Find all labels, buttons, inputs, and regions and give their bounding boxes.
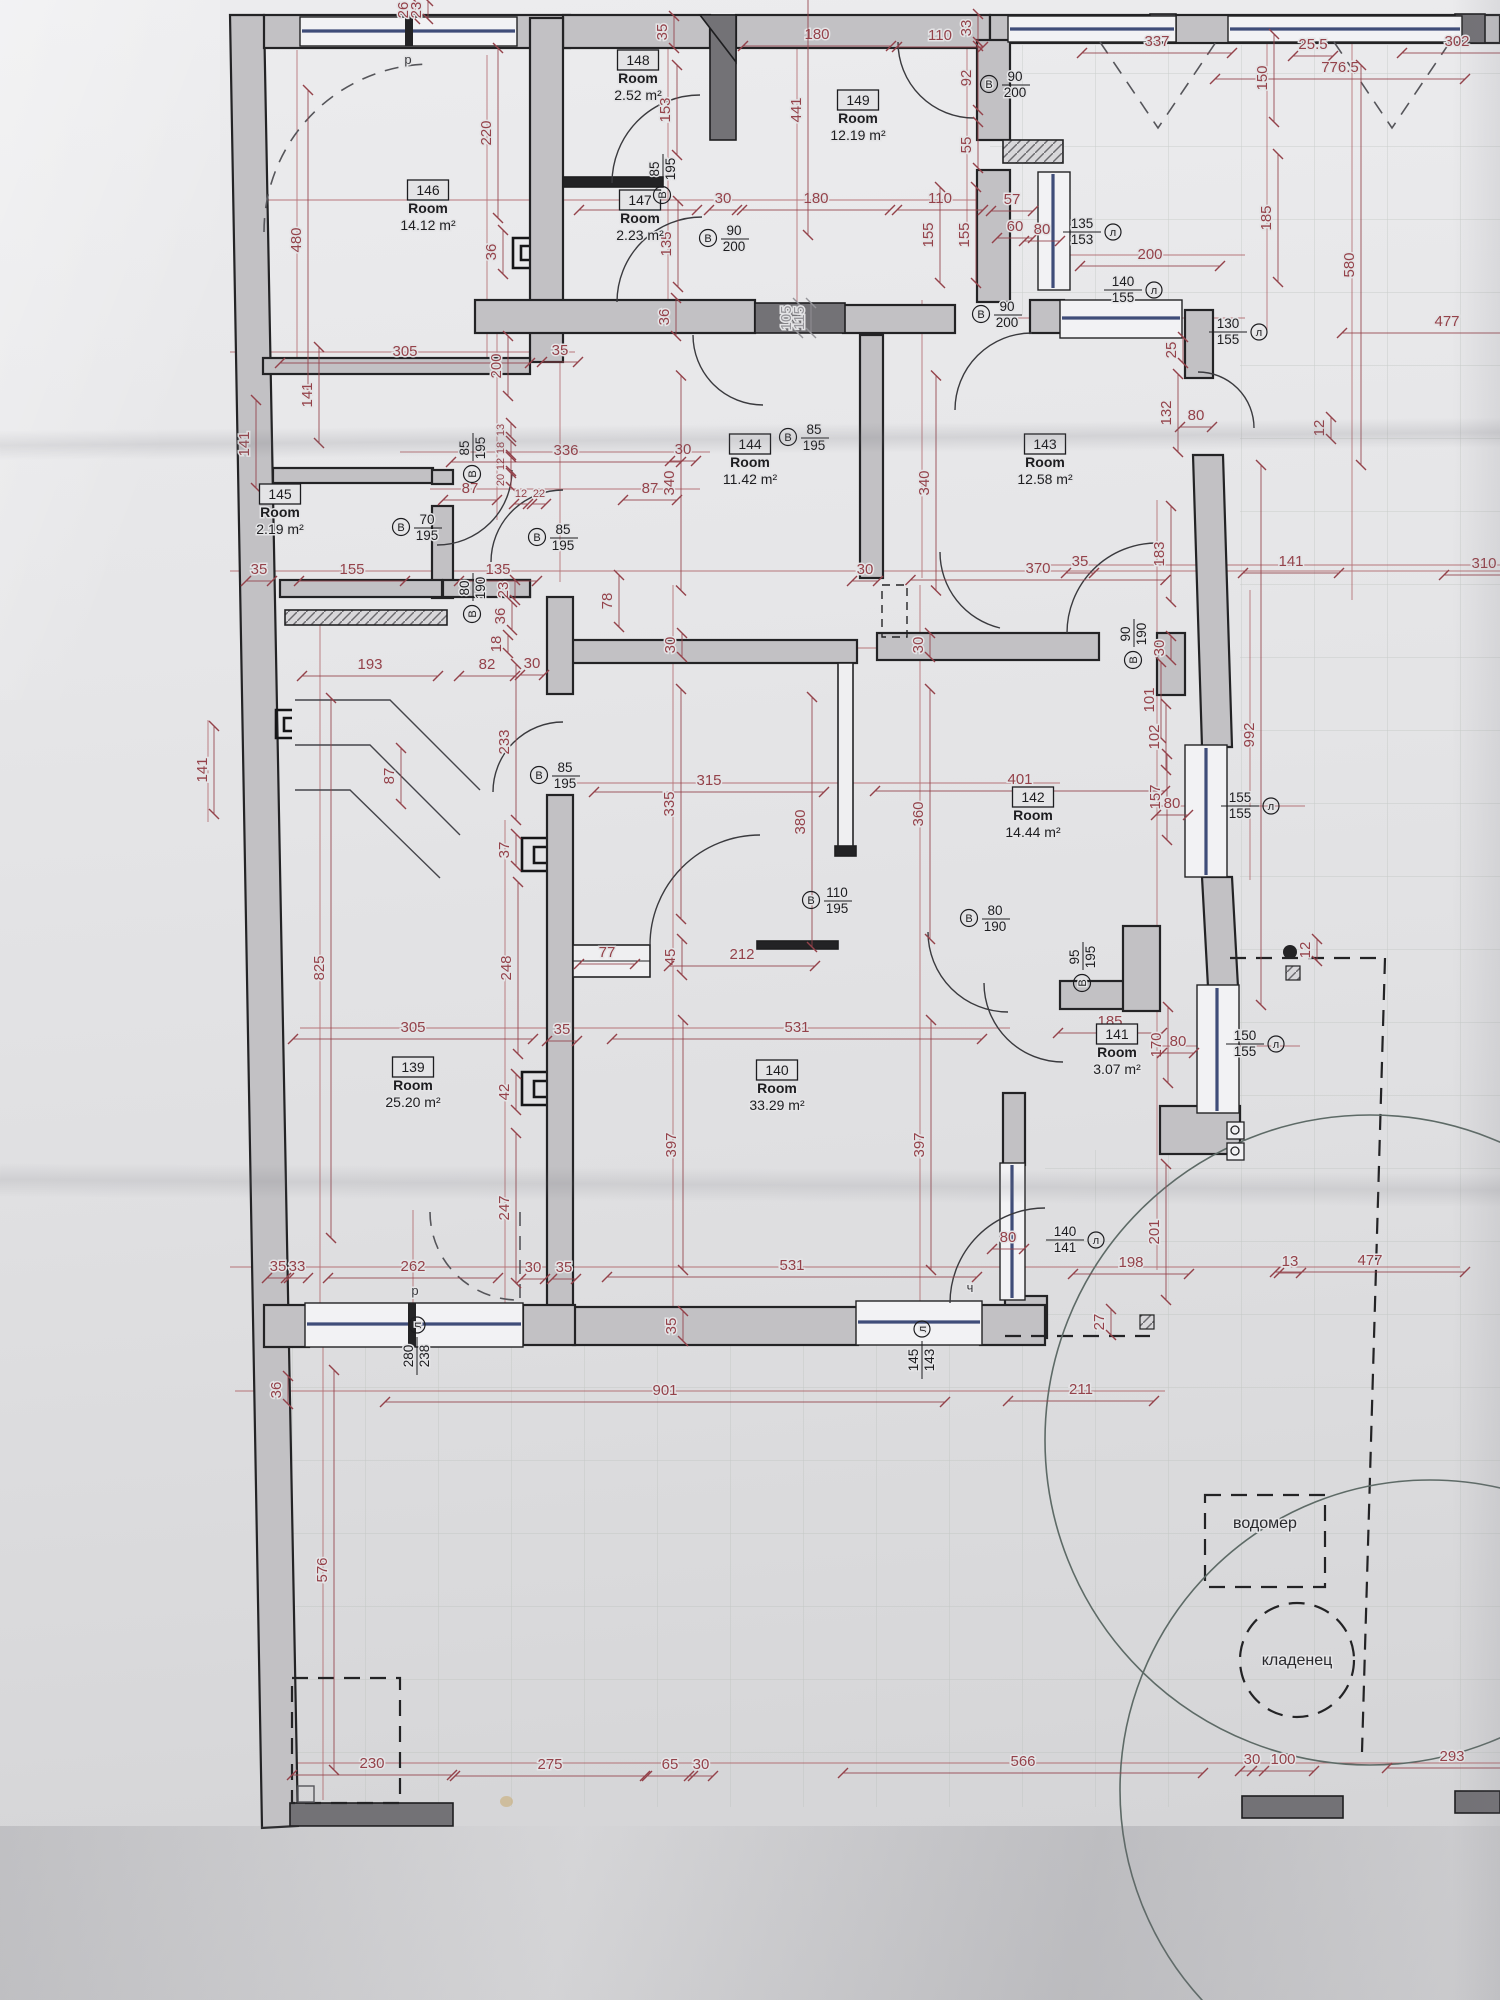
svg-text:30: 30 (693, 1756, 710, 1773)
svg-text:195: 195 (552, 538, 575, 553)
svg-text:л: л (1110, 227, 1116, 239)
svg-text:155: 155 (956, 222, 973, 247)
dim-label: 315 (589, 772, 829, 797)
dim-label: 45 (662, 934, 687, 980)
svg-text:200: 200 (1137, 246, 1162, 263)
svg-text:141: 141 (299, 382, 316, 407)
svg-text:380: 380 (792, 809, 809, 834)
svg-text:23: 23 (495, 582, 512, 599)
door-size-label: В85195 (780, 422, 830, 453)
svg-text:155: 155 (339, 561, 364, 578)
svg-text:35: 35 (251, 561, 268, 578)
svg-text:2.52 m²: 2.52 m² (614, 87, 662, 103)
dim-label: 35 (1061, 553, 1099, 578)
svg-text:14.12 m²: 14.12 m² (400, 217, 456, 233)
svg-text:В: В (535, 770, 542, 782)
svg-text:35: 35 (1072, 553, 1089, 570)
dim-label: 20 (495, 468, 516, 492)
svg-text:200: 200 (1004, 85, 1027, 100)
dim-label: 30 (704, 190, 742, 215)
dim-label: 340 (661, 371, 686, 596)
svg-text:397: 397 (911, 1132, 928, 1157)
svg-text:145: 145 (906, 1349, 921, 1372)
svg-text:37: 37 (496, 842, 513, 859)
svg-text:12: 12 (495, 458, 507, 470)
svg-text:42: 42 (496, 1084, 513, 1101)
svg-text:195: 195 (826, 901, 849, 916)
room-label-144: 144Room11.42 m² (723, 434, 778, 487)
svg-text:230: 230 (359, 1755, 384, 1772)
svg-text:Room: Room (838, 110, 878, 126)
svg-text:л: л (1093, 1235, 1099, 1247)
dim-label: 193 (297, 656, 443, 681)
svg-text:ч: ч (967, 1280, 974, 1295)
svg-text:195: 195 (416, 528, 439, 543)
dim-label: 340 (916, 371, 941, 596)
svg-text:302: 302 (1444, 33, 1469, 50)
svg-text:25.20 m²: 25.20 m² (385, 1094, 441, 1110)
svg-text:77: 77 (599, 944, 616, 961)
svg-text:200: 200 (723, 239, 746, 254)
svg-text:27: 27 (1091, 1314, 1108, 1331)
swing-letter: р (411, 1283, 418, 1298)
svg-text:80: 80 (1000, 1229, 1017, 1246)
svg-text:л: л (1256, 327, 1262, 339)
paper-stain (500, 1796, 513, 1807)
swing-letters: ррч (404, 52, 973, 1298)
svg-text:200: 200 (996, 315, 1019, 330)
svg-text:85: 85 (457, 440, 472, 455)
svg-text:80: 80 (457, 580, 472, 595)
svg-text:143: 143 (1033, 436, 1057, 452)
svg-text:132: 132 (1158, 400, 1175, 425)
room-label-143: 143Room12.58 m² (1017, 434, 1073, 487)
door-size-label: В90190 (1118, 619, 1149, 669)
svg-text:33: 33 (958, 20, 975, 37)
dim-label: 36 (492, 597, 517, 635)
swing-letter: р (404, 52, 411, 67)
svg-text:566: 566 (1010, 1753, 1035, 1770)
svg-text:Room: Room (730, 454, 770, 470)
door-size-label: В85195 (457, 433, 488, 483)
svg-text:183: 183 (1151, 541, 1168, 566)
svg-text:101: 101 (1141, 687, 1158, 712)
svg-text:211: 211 (1069, 1381, 1093, 1398)
dim-label: 18 (488, 630, 513, 658)
svg-text:140: 140 (1054, 1224, 1077, 1239)
svg-text:195: 195 (1083, 946, 1098, 969)
svg-text:В: В (965, 913, 972, 925)
dim-label: 360 (910, 684, 935, 944)
svg-text:80: 80 (1170, 1033, 1187, 1050)
svg-text:144: 144 (738, 436, 762, 452)
svg-text:293: 293 (1439, 1748, 1464, 1765)
dim-label: 531 (607, 1019, 987, 1044)
floorplan-drawing: 2623220480305200353635153165301801353618… (0, 0, 1500, 2000)
svg-text:335: 335 (661, 791, 678, 816)
svg-text:141: 141 (194, 757, 211, 782)
svg-text:155: 155 (920, 222, 937, 247)
door-size-label: В85195 (529, 522, 579, 553)
svg-text:35: 35 (554, 1021, 571, 1038)
svg-text:401: 401 (1007, 771, 1032, 788)
svg-text:248: 248 (498, 955, 515, 980)
svg-text:30: 30 (1151, 640, 1168, 657)
svg-text:30: 30 (1244, 1751, 1261, 1768)
svg-text:150: 150 (1234, 1028, 1257, 1043)
svg-text:36: 36 (656, 309, 673, 326)
dim-label: 12 (495, 452, 516, 476)
svg-text:Room: Room (620, 210, 660, 226)
svg-text:340: 340 (916, 470, 933, 495)
svg-text:531: 531 (779, 1257, 804, 1274)
dim-label: 825 (311, 693, 336, 1243)
partition-lines (573, 663, 853, 977)
svg-text:80: 80 (1034, 221, 1051, 238)
dim-label: 397 (911, 1015, 936, 1275)
room-label-141: 141Room3.07 m² (1093, 1024, 1141, 1077)
svg-text:85: 85 (647, 161, 662, 176)
dim-label: 37 (496, 829, 521, 871)
svg-text:901: 901 (652, 1382, 677, 1399)
svg-text:80: 80 (987, 903, 1002, 918)
svg-text:12: 12 (1311, 420, 1328, 437)
svg-text:825: 825 (311, 955, 328, 980)
dim-label: 248 (498, 877, 523, 1059)
svg-text:36: 36 (492, 608, 509, 625)
svg-text:В: В (467, 610, 479, 617)
svg-text:110: 110 (928, 27, 952, 44)
svg-text:36: 36 (268, 1382, 285, 1399)
svg-text:водомер: водомер (1233, 1515, 1297, 1532)
dim-label: 397 (663, 1015, 688, 1275)
svg-text:146: 146 (416, 182, 440, 198)
svg-text:180: 180 (803, 190, 828, 207)
svg-text:336: 336 (553, 442, 578, 459)
svg-text:305: 305 (392, 343, 417, 360)
svg-text:157: 157 (1147, 784, 1164, 809)
room-label-146: 146Room14.12 m² (400, 180, 456, 233)
svg-text:12.19 m²: 12.19 m² (830, 127, 886, 143)
svg-text:13: 13 (1282, 1253, 1299, 1270)
svg-text:315: 315 (696, 772, 721, 789)
dim-label: 78 (599, 570, 624, 632)
svg-text:110: 110 (826, 885, 848, 900)
swing-letter: ч (967, 1280, 974, 1295)
svg-text:В: В (784, 432, 791, 444)
svg-text:Room: Room (408, 200, 448, 216)
svg-text:90: 90 (999, 299, 1014, 314)
svg-text:л: л (917, 1326, 929, 1332)
svg-text:25: 25 (1163, 342, 1180, 359)
svg-text:580: 580 (1341, 252, 1358, 277)
room-label-145: 145Room2.19 m² (256, 484, 304, 537)
svg-text:90: 90 (726, 223, 741, 238)
svg-text:90: 90 (1118, 626, 1133, 641)
svg-text:В: В (977, 309, 984, 321)
dim-label: 80 (1175, 407, 1217, 432)
svg-text:В: В (1128, 656, 1140, 663)
svg-text:85: 85 (555, 522, 570, 537)
svg-text:185: 185 (1258, 205, 1275, 230)
svg-text:193: 193 (357, 656, 382, 673)
svg-text:92: 92 (958, 70, 975, 87)
svg-text:190: 190 (984, 919, 1007, 934)
svg-text:30: 30 (910, 637, 927, 654)
dim-label: 335 (661, 684, 686, 924)
dim-label: 13 (495, 418, 516, 442)
dim-label: 141 (194, 721, 219, 819)
dim-label: 233 (496, 659, 521, 825)
room-label-139: 139Room25.20 m² (385, 1057, 441, 1110)
svg-text:л: л (1151, 285, 1157, 297)
dim-label: 153 (657, 60, 682, 160)
svg-text:25.5: 25.5 (1298, 36, 1327, 53)
svg-text:139: 139 (401, 1059, 425, 1075)
svg-text:531: 531 (784, 1019, 809, 1036)
room-label-142: 142Room14.44 m² (1005, 787, 1061, 840)
svg-text:212: 212 (729, 946, 754, 963)
svg-text:30: 30 (524, 655, 541, 672)
svg-text:30: 30 (857, 561, 874, 578)
svg-text:115: 115 (791, 306, 808, 330)
svg-text:149: 149 (846, 92, 870, 108)
svg-text:л: л (1268, 801, 1274, 813)
svg-text:55: 55 (958, 137, 975, 154)
svg-text:12.58 m²: 12.58 m² (1017, 471, 1073, 487)
svg-text:280: 280 (401, 1345, 416, 1368)
svg-text:247: 247 (496, 1195, 513, 1220)
svg-text:18: 18 (488, 636, 505, 653)
svg-text:200: 200 (488, 353, 505, 378)
svg-text:78: 78 (599, 593, 616, 610)
svg-text:141: 141 (1054, 1240, 1077, 1255)
svg-text:30: 30 (675, 441, 692, 458)
door-size-label: В90200 (700, 223, 750, 254)
svg-text:Room: Room (757, 1080, 797, 1096)
svg-text:р: р (411, 1283, 418, 1298)
svg-text:135: 135 (485, 561, 510, 578)
svg-text:36: 36 (483, 244, 500, 261)
svg-text:370: 370 (1025, 560, 1050, 577)
svg-text:30: 30 (525, 1259, 542, 1276)
svg-text:Room: Room (1025, 454, 1065, 470)
dim-label: 220 (478, 43, 503, 223)
dim-label: 132 (1158, 369, 1183, 457)
svg-text:12: 12 (1297, 942, 1314, 959)
svg-text:20: 20 (495, 474, 507, 486)
svg-text:155: 155 (1112, 290, 1135, 305)
dim-label: 380 (792, 692, 817, 952)
svg-text:135: 135 (1071, 216, 1094, 231)
svg-text:В: В (657, 191, 669, 198)
svg-text:18: 18 (495, 442, 507, 454)
svg-text:2.19 m²: 2.19 m² (256, 521, 304, 537)
svg-text:140: 140 (1112, 274, 1135, 289)
svg-text:776.5: 776.5 (1321, 59, 1359, 76)
svg-text:441: 441 (788, 97, 805, 122)
svg-text:23: 23 (408, 2, 425, 19)
svg-text:480: 480 (288, 227, 305, 252)
svg-text:100: 100 (1270, 1751, 1295, 1768)
dim-label: 480 (288, 85, 313, 395)
svg-text:В: В (397, 522, 404, 534)
svg-text:кладенец: кладенец (1262, 1652, 1333, 1669)
svg-text:р: р (404, 52, 411, 67)
svg-text:141: 141 (1278, 553, 1303, 570)
svg-text:145: 145 (268, 486, 292, 502)
svg-text:95: 95 (1067, 949, 1082, 964)
svg-text:576: 576 (314, 1557, 331, 1582)
svg-text:3.07 m²: 3.07 m² (1093, 1061, 1141, 1077)
svg-text:141: 141 (1105, 1026, 1129, 1042)
svg-text:360: 360 (910, 801, 927, 826)
svg-text:195: 195 (473, 437, 488, 460)
svg-text:35: 35 (556, 1259, 573, 1276)
svg-text:305: 305 (400, 1019, 425, 1036)
svg-text:35: 35 (552, 342, 569, 359)
svg-text:В: В (1077, 979, 1089, 986)
outer-left-wall (230, 15, 298, 1828)
svg-text:190: 190 (1134, 623, 1149, 646)
svg-text:90: 90 (1007, 69, 1022, 84)
room-label-140: 140Room33.29 m² (749, 1060, 805, 1113)
wall-hatched-layer (285, 140, 1063, 625)
svg-text:87: 87 (381, 768, 398, 785)
svg-text:220: 220 (478, 120, 495, 145)
dim-label: 87 (381, 743, 406, 809)
svg-text:л: л (1273, 1039, 1279, 1051)
svg-text:В: В (704, 233, 711, 245)
svg-text:80: 80 (1164, 795, 1181, 812)
svg-text:155: 155 (1217, 332, 1240, 347)
svg-text:11.42 m²: 11.42 m² (723, 471, 778, 487)
svg-text:102: 102 (1146, 724, 1163, 749)
svg-text:В: В (985, 79, 992, 91)
svg-text:150: 150 (1254, 65, 1271, 90)
door-size-label: В110195 (803, 885, 853, 916)
svg-text:80: 80 (1188, 407, 1205, 424)
svg-text:233: 233 (496, 729, 513, 754)
svg-text:12: 12 (515, 488, 527, 500)
svg-text:190: 190 (473, 577, 488, 600)
svg-text:30: 30 (662, 637, 679, 654)
stairs (295, 700, 480, 878)
svg-text:30: 30 (715, 190, 732, 207)
note-водомер: водомер (1233, 1515, 1297, 1532)
svg-text:Room: Room (618, 70, 658, 86)
svg-text:Room: Room (393, 1077, 433, 1093)
dim-label: 247 (496, 1128, 521, 1288)
room-label-149: 149Room12.19 m² (830, 90, 886, 143)
svg-text:82: 82 (479, 656, 496, 673)
svg-text:397: 397 (663, 1132, 680, 1157)
door-size-label: В85195 (531, 760, 581, 791)
svg-text:Room: Room (1097, 1044, 1137, 1060)
note-кладенец: кладенец (1262, 1652, 1333, 1669)
svg-text:35: 35 (270, 1258, 287, 1275)
svg-text:195: 195 (803, 438, 826, 453)
svg-text:155: 155 (1234, 1044, 1257, 1059)
svg-text:153: 153 (1071, 232, 1094, 247)
svg-text:л: л (412, 1322, 424, 1328)
dim-label: 531 (602, 1257, 982, 1282)
svg-text:992: 992 (1241, 722, 1258, 747)
svg-text:155: 155 (1229, 790, 1252, 805)
svg-text:238: 238 (417, 1345, 432, 1368)
dim-label: 183 (1151, 501, 1176, 607)
svg-text:141: 141 (236, 431, 253, 456)
svg-text:13: 13 (495, 424, 507, 436)
floorplan-scan: 2623220480305200353635153165301801353618… (0, 0, 1500, 2000)
dim-label: 180 (737, 190, 895, 215)
svg-text:45: 45 (662, 949, 679, 966)
svg-text:14.44 m²: 14.44 m² (1005, 824, 1061, 840)
svg-text:340: 340 (661, 470, 678, 495)
dim-label: 42 (496, 1069, 521, 1115)
dim-label: 82 (454, 656, 520, 681)
svg-text:275: 275 (537, 1756, 562, 1773)
svg-text:65: 65 (662, 1756, 679, 1773)
svg-text:195: 195 (554, 776, 577, 791)
svg-text:201: 201 (1146, 1219, 1163, 1244)
svg-text:В: В (467, 470, 479, 477)
svg-text:В: В (533, 532, 540, 544)
svg-text:262: 262 (400, 1258, 425, 1275)
svg-text:35: 35 (663, 1318, 680, 1335)
svg-text:2.23 m²: 2.23 m² (616, 227, 664, 243)
svg-text:195: 195 (663, 158, 678, 181)
svg-text:337: 337 (1144, 33, 1169, 50)
svg-text:85: 85 (806, 422, 821, 437)
dim-label: 30 (516, 1259, 550, 1284)
room-label-148: 148Room2.52 m² (614, 50, 662, 103)
svg-text:147: 147 (628, 192, 652, 208)
svg-text:170: 170 (1148, 1032, 1165, 1057)
svg-text:140: 140 (765, 1062, 789, 1078)
svg-text:477: 477 (1434, 313, 1459, 330)
svg-text:198: 198 (1118, 1254, 1143, 1271)
dim-label: 305 (288, 1019, 538, 1044)
svg-text:60: 60 (1007, 218, 1024, 235)
svg-text:35: 35 (654, 24, 671, 41)
svg-text:142: 142 (1021, 789, 1045, 805)
svg-text:477: 477 (1357, 1252, 1382, 1269)
svg-text:В: В (807, 895, 814, 907)
door-size-label: В80190 (961, 903, 1011, 934)
svg-text:57: 57 (1004, 191, 1021, 208)
svg-text:33: 33 (289, 1258, 306, 1275)
svg-text:22: 22 (533, 488, 545, 500)
svg-text:70: 70 (419, 512, 434, 527)
svg-text:310: 310 (1471, 555, 1496, 572)
svg-text:148: 148 (626, 52, 650, 68)
svg-text:130: 130 (1217, 316, 1240, 331)
svg-text:155: 155 (1229, 806, 1252, 821)
svg-text:85: 85 (557, 760, 572, 775)
svg-text:87: 87 (642, 480, 659, 497)
svg-text:143: 143 (922, 1349, 937, 1372)
svg-text:33.29 m²: 33.29 m² (749, 1097, 805, 1113)
svg-text:Room: Room (1013, 807, 1053, 823)
svg-text:Room: Room (260, 504, 300, 520)
